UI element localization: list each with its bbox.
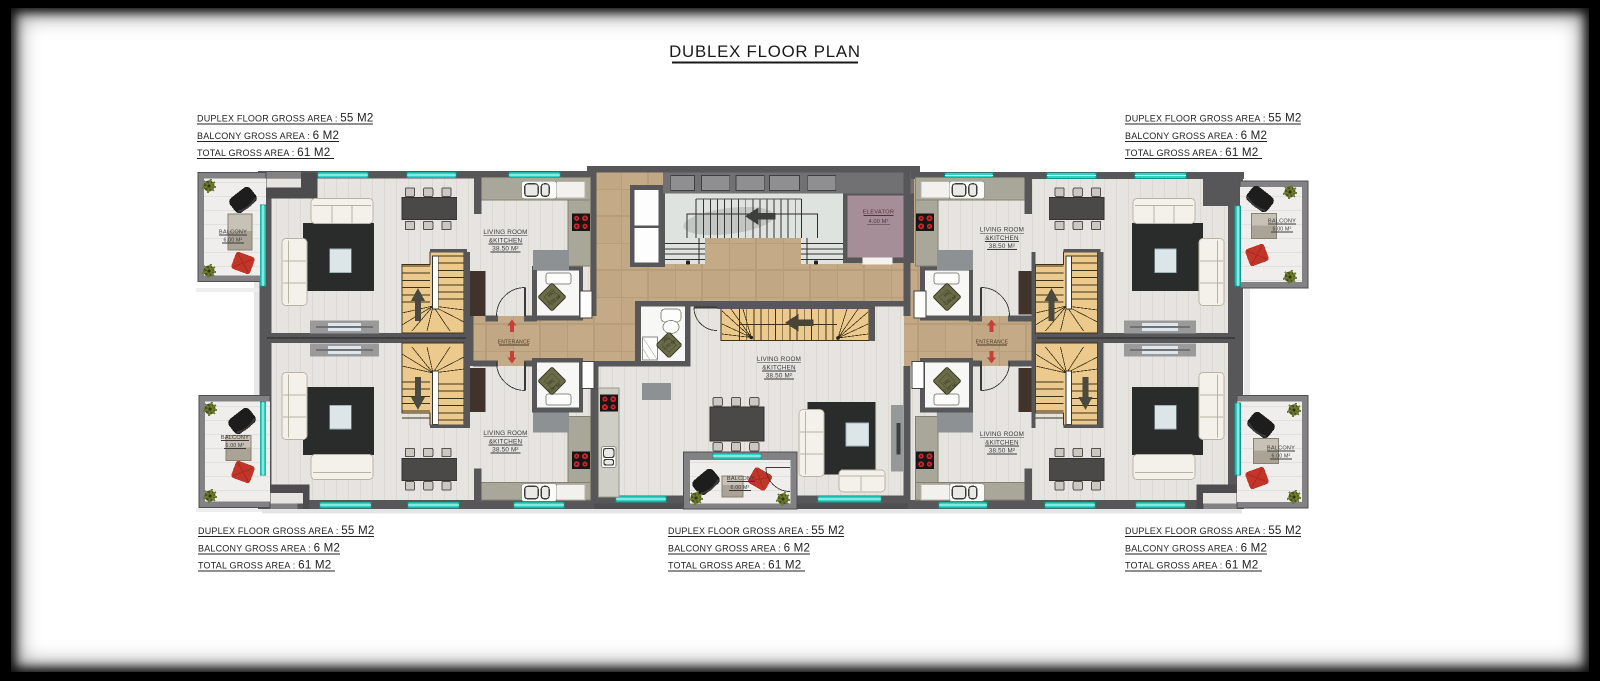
svg-text:38.50 M²: 38.50 M² — [989, 243, 1015, 250]
svg-text:LIVING ROOM: LIVING ROOM — [483, 430, 527, 437]
svg-text:LIVING ROOM: LIVING ROOM — [483, 229, 527, 236]
svg-text:DUPLEX FLOOR GROSS AREA : 55 M: DUPLEX FLOOR GROSS AREA : 55 M2 — [668, 524, 844, 537]
svg-text:38.50 M²: 38.50 M² — [492, 245, 518, 252]
svg-text:38.50 M²: 38.50 M² — [989, 447, 1015, 454]
svg-text:&KITCHEN: &KITCHEN — [762, 364, 796, 371]
svg-text:TOTAL GROSS AREA : 61 M2: TOTAL GROSS AREA : 61 M2 — [1125, 559, 1258, 572]
svg-text:DUPLEX FLOOR GROSS AREA : 55 M: DUPLEX FLOOR GROSS AREA : 55 M2 — [197, 112, 373, 125]
svg-text:6.00 M²: 6.00 M² — [1273, 227, 1292, 233]
svg-text:TOTAL GROSS AREA : 61 M2: TOTAL GROSS AREA : 61 M2 — [1125, 146, 1258, 159]
svg-text:BALCONY GROSS AREA : 6 M2: BALCONY GROSS AREA : 6 M2 — [197, 129, 339, 142]
svg-text:TOTAL GROSS AREA : 61 M2: TOTAL GROSS AREA : 61 M2 — [197, 146, 330, 159]
svg-text:BALCONY GROSS AREA : 6 M2: BALCONY GROSS AREA : 6 M2 — [1125, 541, 1267, 554]
svg-text:BALCONY: BALCONY — [219, 230, 247, 236]
svg-text:6.00 M²: 6.00 M² — [224, 238, 243, 244]
svg-text:&KITCHEN: &KITCHEN — [489, 237, 523, 244]
svg-text:BALCONY: BALCONY — [221, 435, 249, 441]
svg-text:DUBLEX FLOOR PLAN: DUBLEX FLOOR PLAN — [669, 42, 861, 61]
svg-text:6.00 M²: 6.00 M² — [731, 485, 750, 491]
svg-text:38.50 M²: 38.50 M² — [492, 446, 518, 453]
svg-text:BALCONY: BALCONY — [1267, 446, 1295, 452]
svg-text:BALCONY GROSS AREA : 6 M2: BALCONY GROSS AREA : 6 M2 — [668, 541, 810, 554]
svg-text:LIVING ROOM: LIVING ROOM — [757, 356, 801, 363]
svg-text:&KITCHEN: &KITCHEN — [985, 439, 1019, 446]
svg-text:DUPLEX FLOOR GROSS AREA : 55 M: DUPLEX FLOOR GROSS AREA : 55 M2 — [198, 524, 374, 537]
svg-text:&KITCHEN: &KITCHEN — [489, 438, 523, 445]
svg-text:TOTAL GROSS AREA : 61 M2: TOTAL GROSS AREA : 61 M2 — [198, 559, 331, 572]
svg-text:ENTERANCE: ENTERANCE — [976, 340, 1009, 346]
svg-text:4.00 M²: 4.00 M² — [868, 219, 888, 225]
svg-text:BALCONY: BALCONY — [727, 476, 755, 482]
svg-text:DUPLEX FLOOR GROSS AREA : 55 M: DUPLEX FLOOR GROSS AREA : 55 M2 — [1125, 524, 1301, 537]
svg-text:LIVING ROOM: LIVING ROOM — [980, 227, 1024, 234]
svg-text:BALCONY: BALCONY — [1268, 219, 1296, 225]
svg-text:BALCONY GROSS AREA : 6 M2: BALCONY GROSS AREA : 6 M2 — [1125, 129, 1267, 142]
svg-text:LIVING ROOM: LIVING ROOM — [980, 431, 1024, 438]
svg-text:6.00 M²: 6.00 M² — [1272, 454, 1291, 460]
svg-text:TOTAL GROSS AREA : 61 M2: TOTAL GROSS AREA : 61 M2 — [668, 559, 801, 572]
svg-text:38.50 M²: 38.50 M² — [766, 372, 792, 379]
svg-text:6.00 M²: 6.00 M² — [226, 443, 245, 449]
svg-text:BALCONY GROSS AREA : 6 M2: BALCONY GROSS AREA : 6 M2 — [198, 541, 340, 554]
svg-text:ELEVATOR: ELEVATOR — [863, 210, 894, 216]
svg-text:&KITCHEN: &KITCHEN — [985, 235, 1019, 242]
svg-text:ENTERANCE: ENTERANCE — [498, 340, 531, 346]
svg-text:DUPLEX FLOOR GROSS AREA : 55 M: DUPLEX FLOOR GROSS AREA : 55 M2 — [1125, 112, 1301, 125]
